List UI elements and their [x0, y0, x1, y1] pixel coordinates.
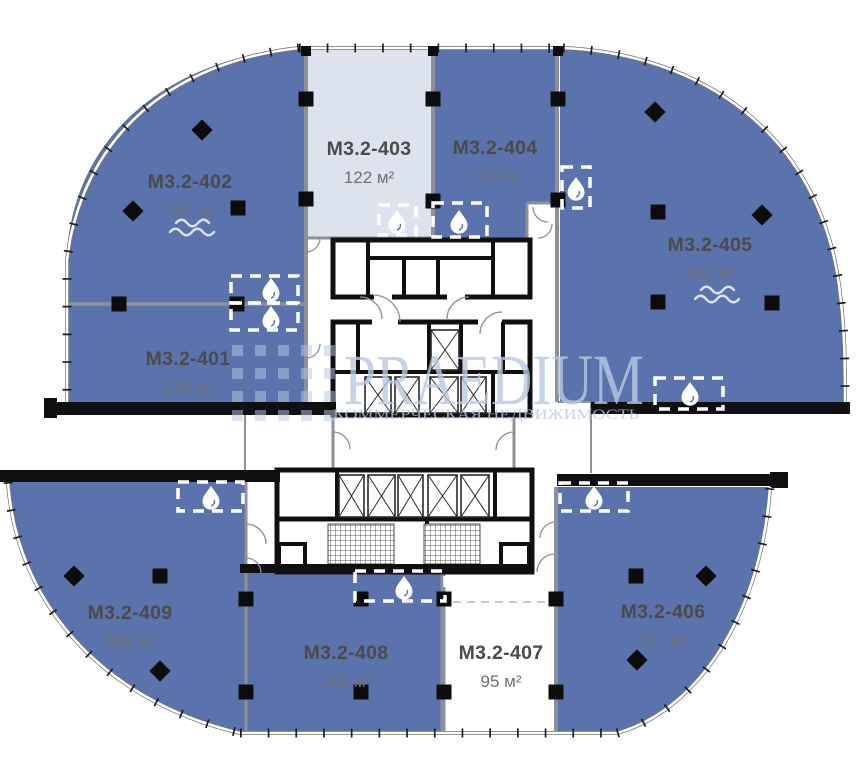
floorplan-canvas: PRAEDIUM КОММЕРЧЕСКАЯ НЕДВИЖИМОСТЬ M3.2-… [0, 0, 863, 768]
staircase-icon [328, 524, 394, 564]
column-icon [551, 92, 566, 107]
unit-region-M3.2-404[interactable] [433, 48, 557, 240]
unit-region-M3.2-406[interactable] [558, 487, 770, 734]
column-icon [239, 685, 254, 700]
staircase-icon [424, 524, 480, 564]
core-lower [240, 470, 532, 573]
column-icon [299, 92, 314, 107]
unit-region-M3.2-402-401[interactable] [67, 48, 306, 402]
column-icon [765, 296, 780, 311]
column-icon [428, 46, 438, 56]
unit-region-M3.2-409[interactable] [8, 482, 246, 734]
elevator-shaft-icon [398, 475, 423, 517]
column-icon [549, 592, 564, 607]
unit-region-M3.2-407[interactable] [446, 573, 556, 734]
column-icon [231, 201, 246, 216]
elevator-shaft-icon [428, 475, 457, 517]
watermark-subtitle: КОММЕРЧЕСКАЯ НЕДВИЖИМОСТЬ [333, 407, 639, 423]
column-icon [651, 205, 666, 220]
column-icon [426, 92, 441, 107]
column-icon [301, 46, 311, 56]
column-icon [112, 297, 127, 312]
column-icon [299, 192, 314, 207]
unit-region-M3.2-403[interactable] [306, 48, 433, 238]
floorplan-drawing: PRAEDIUM КОММЕРЧЕСКАЯ НЕДВИЖИМОСТЬ [0, 0, 863, 768]
column-icon [239, 592, 254, 607]
column-icon [651, 295, 666, 310]
column-icon [354, 685, 369, 700]
unit-region-M3.2-408[interactable] [246, 573, 445, 734]
column-icon [437, 685, 452, 700]
column-icon [553, 46, 563, 56]
elevator-shaft-icon [368, 475, 395, 517]
column-icon [549, 685, 564, 700]
column-icon [629, 569, 644, 584]
elevator-shaft-icon [461, 475, 489, 517]
column-icon [153, 569, 168, 584]
elevator-shaft-icon [339, 475, 364, 517]
